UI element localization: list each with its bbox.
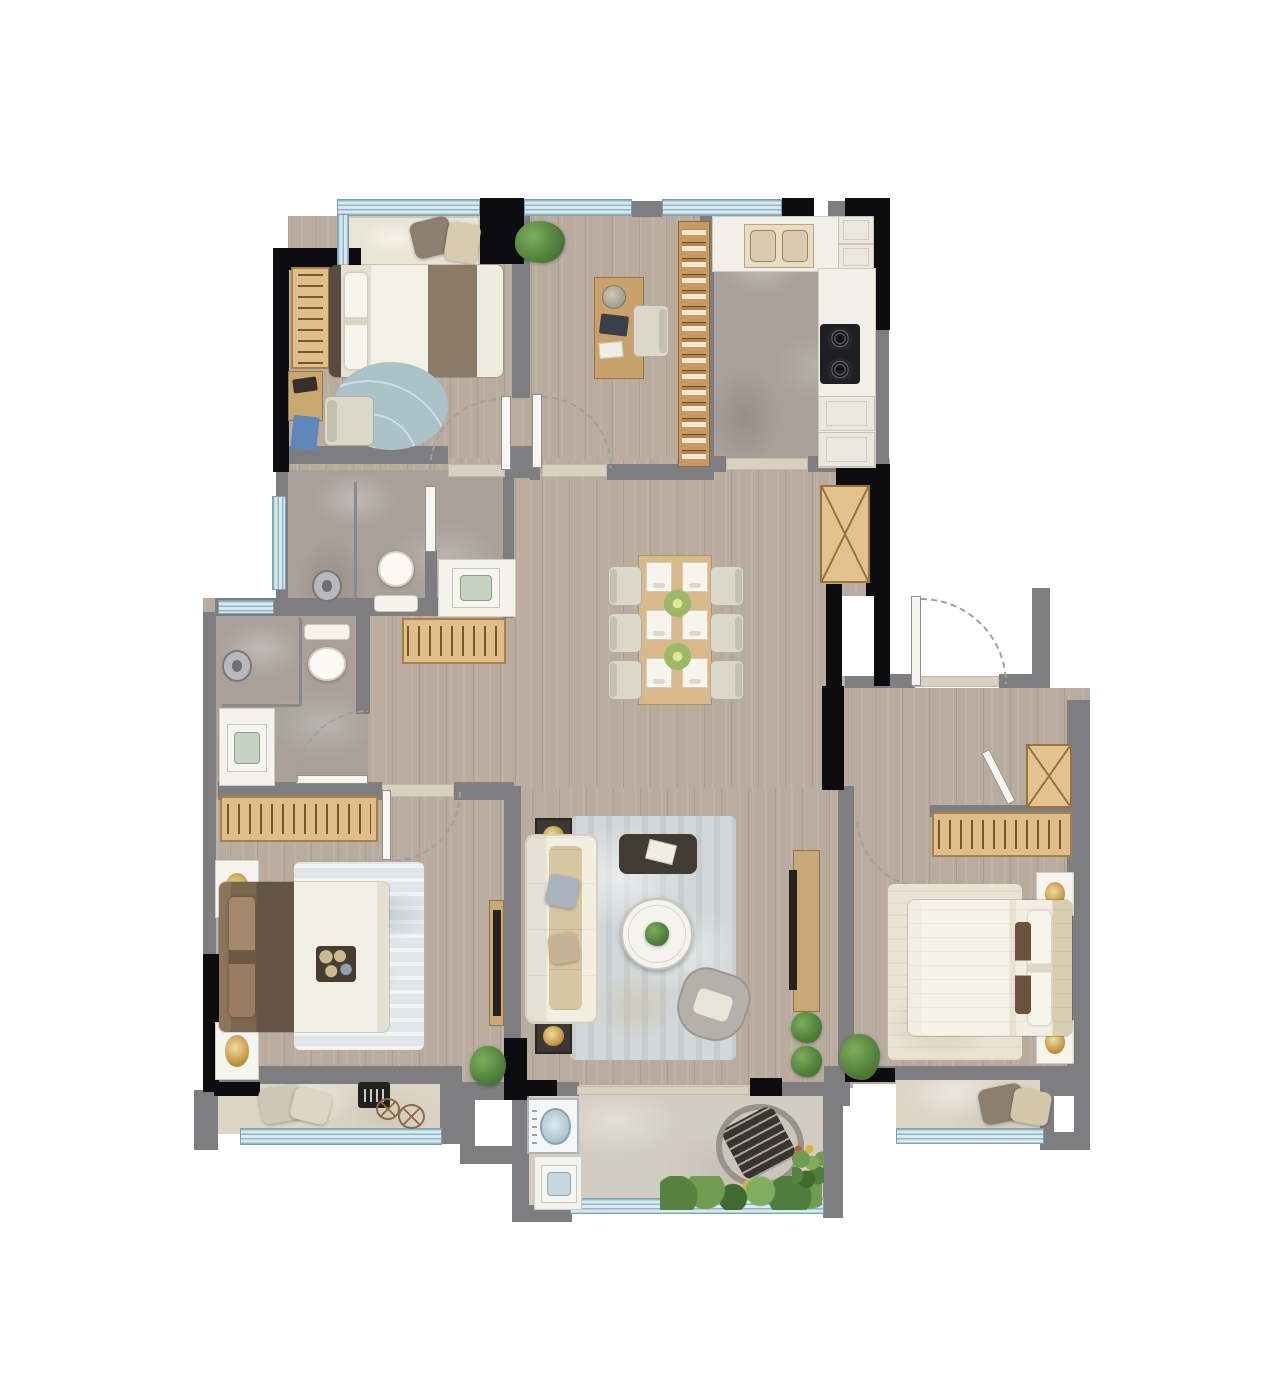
wall bbox=[632, 201, 662, 217]
wall bbox=[356, 612, 370, 714]
bed-master bbox=[908, 900, 1072, 1036]
kitchen-cabinet bbox=[838, 216, 874, 244]
door-study bbox=[532, 394, 542, 468]
place-setting bbox=[646, 562, 672, 592]
window bbox=[662, 199, 782, 216]
dining-chair bbox=[608, 566, 642, 606]
plant-bedroom2 bbox=[470, 1046, 506, 1086]
door-bath1 bbox=[425, 486, 436, 552]
wall-void bbox=[1054, 1096, 1074, 1132]
plant-master bbox=[840, 1034, 880, 1080]
sink-bath1 bbox=[452, 568, 500, 608]
place-setting bbox=[682, 562, 708, 592]
chair-bedroom1 bbox=[324, 396, 374, 446]
bookshelf-study bbox=[678, 221, 710, 467]
toilet-bath2 bbox=[302, 624, 352, 682]
floor-plan bbox=[0, 0, 1288, 1400]
wall-black bbox=[826, 584, 842, 686]
wall bbox=[1032, 588, 1050, 688]
exterior-notch-left bbox=[196, 440, 276, 598]
window bbox=[337, 214, 349, 270]
centerpiece bbox=[664, 643, 691, 670]
kitchen-cabinet bbox=[818, 432, 875, 467]
pillow bbox=[1009, 1087, 1052, 1127]
wall bbox=[194, 1090, 218, 1150]
wardrobe-master bbox=[932, 812, 1072, 857]
kitchen-sink bbox=[744, 224, 814, 268]
dining-chair bbox=[608, 613, 642, 653]
pillow bbox=[443, 221, 482, 265]
wall-black bbox=[750, 1078, 782, 1096]
wall-void bbox=[842, 596, 874, 676]
window bbox=[896, 1128, 1044, 1144]
place-setting bbox=[646, 610, 672, 640]
window bbox=[524, 199, 632, 216]
kitchen-cabinet bbox=[818, 396, 875, 431]
laundry-sink bbox=[541, 1165, 577, 1203]
wall bbox=[425, 550, 437, 616]
centerpiece bbox=[664, 590, 691, 617]
dining-chair bbox=[710, 613, 744, 653]
threshold bbox=[726, 458, 808, 470]
wall-black bbox=[214, 1082, 260, 1096]
window bbox=[240, 1128, 442, 1145]
wardrobe-bedroom1 bbox=[291, 267, 330, 369]
threshold bbox=[577, 1086, 749, 1095]
wall bbox=[823, 1092, 843, 1218]
sink-bath2 bbox=[227, 724, 267, 772]
dining-chair bbox=[710, 566, 744, 606]
shower-bath1 bbox=[312, 570, 342, 602]
wall bbox=[555, 1082, 579, 1096]
plant-living bbox=[791, 1012, 822, 1043]
dining-chair bbox=[608, 660, 642, 700]
chair-study bbox=[633, 305, 669, 357]
wall-void bbox=[475, 1100, 512, 1146]
wardrobe-bedroom2 bbox=[220, 796, 378, 842]
tv-bedroom2 bbox=[493, 910, 501, 1016]
door-arc-entry bbox=[921, 598, 1007, 684]
toilet-bath1 bbox=[372, 550, 420, 612]
door-bedroom2 bbox=[382, 790, 391, 860]
window bbox=[337, 199, 480, 216]
wall-black bbox=[822, 686, 844, 790]
wall bbox=[780, 1082, 824, 1096]
place-setting bbox=[682, 610, 708, 640]
wall bbox=[828, 201, 846, 217]
plant-study bbox=[515, 221, 565, 263]
wall-black bbox=[507, 1080, 557, 1096]
book-study bbox=[598, 341, 623, 359]
bed-bedroom1 bbox=[329, 265, 503, 377]
wall-black bbox=[273, 248, 289, 472]
sofa-pillow bbox=[544, 873, 581, 910]
sofa-pillow bbox=[547, 932, 580, 965]
wall-black bbox=[874, 584, 890, 686]
washing-machine bbox=[527, 1098, 579, 1154]
wall bbox=[440, 1082, 462, 1144]
bed-tray bbox=[316, 946, 356, 982]
shower-bath2 bbox=[222, 650, 252, 682]
stove bbox=[820, 324, 860, 384]
hall-closet bbox=[402, 618, 506, 664]
door-bedroom1 bbox=[501, 396, 511, 470]
laptop-study bbox=[599, 313, 629, 336]
coffee-table-plant bbox=[645, 922, 669, 946]
window bbox=[218, 600, 274, 614]
lantern bbox=[376, 1098, 400, 1120]
tv-living bbox=[789, 870, 797, 990]
bath2-partition-h bbox=[222, 704, 300, 707]
plant-living bbox=[791, 1046, 822, 1077]
bath1-partition bbox=[354, 482, 357, 606]
sofa-seat-cushions bbox=[549, 846, 582, 1010]
flower-bed bbox=[792, 1126, 824, 1208]
main-entry-door bbox=[911, 596, 921, 686]
tv-console bbox=[793, 850, 820, 1012]
dining-chair bbox=[710, 660, 744, 700]
lantern bbox=[398, 1104, 425, 1129]
wall bbox=[504, 786, 521, 1042]
fridge-cabinet bbox=[820, 485, 870, 583]
shoe-cabinet bbox=[1026, 744, 1072, 808]
magazine bbox=[290, 415, 319, 452]
kitchen-cabinet bbox=[838, 244, 874, 270]
window bbox=[272, 496, 286, 590]
bed-bedroom2 bbox=[219, 882, 389, 1032]
desk-lamp bbox=[602, 285, 626, 309]
